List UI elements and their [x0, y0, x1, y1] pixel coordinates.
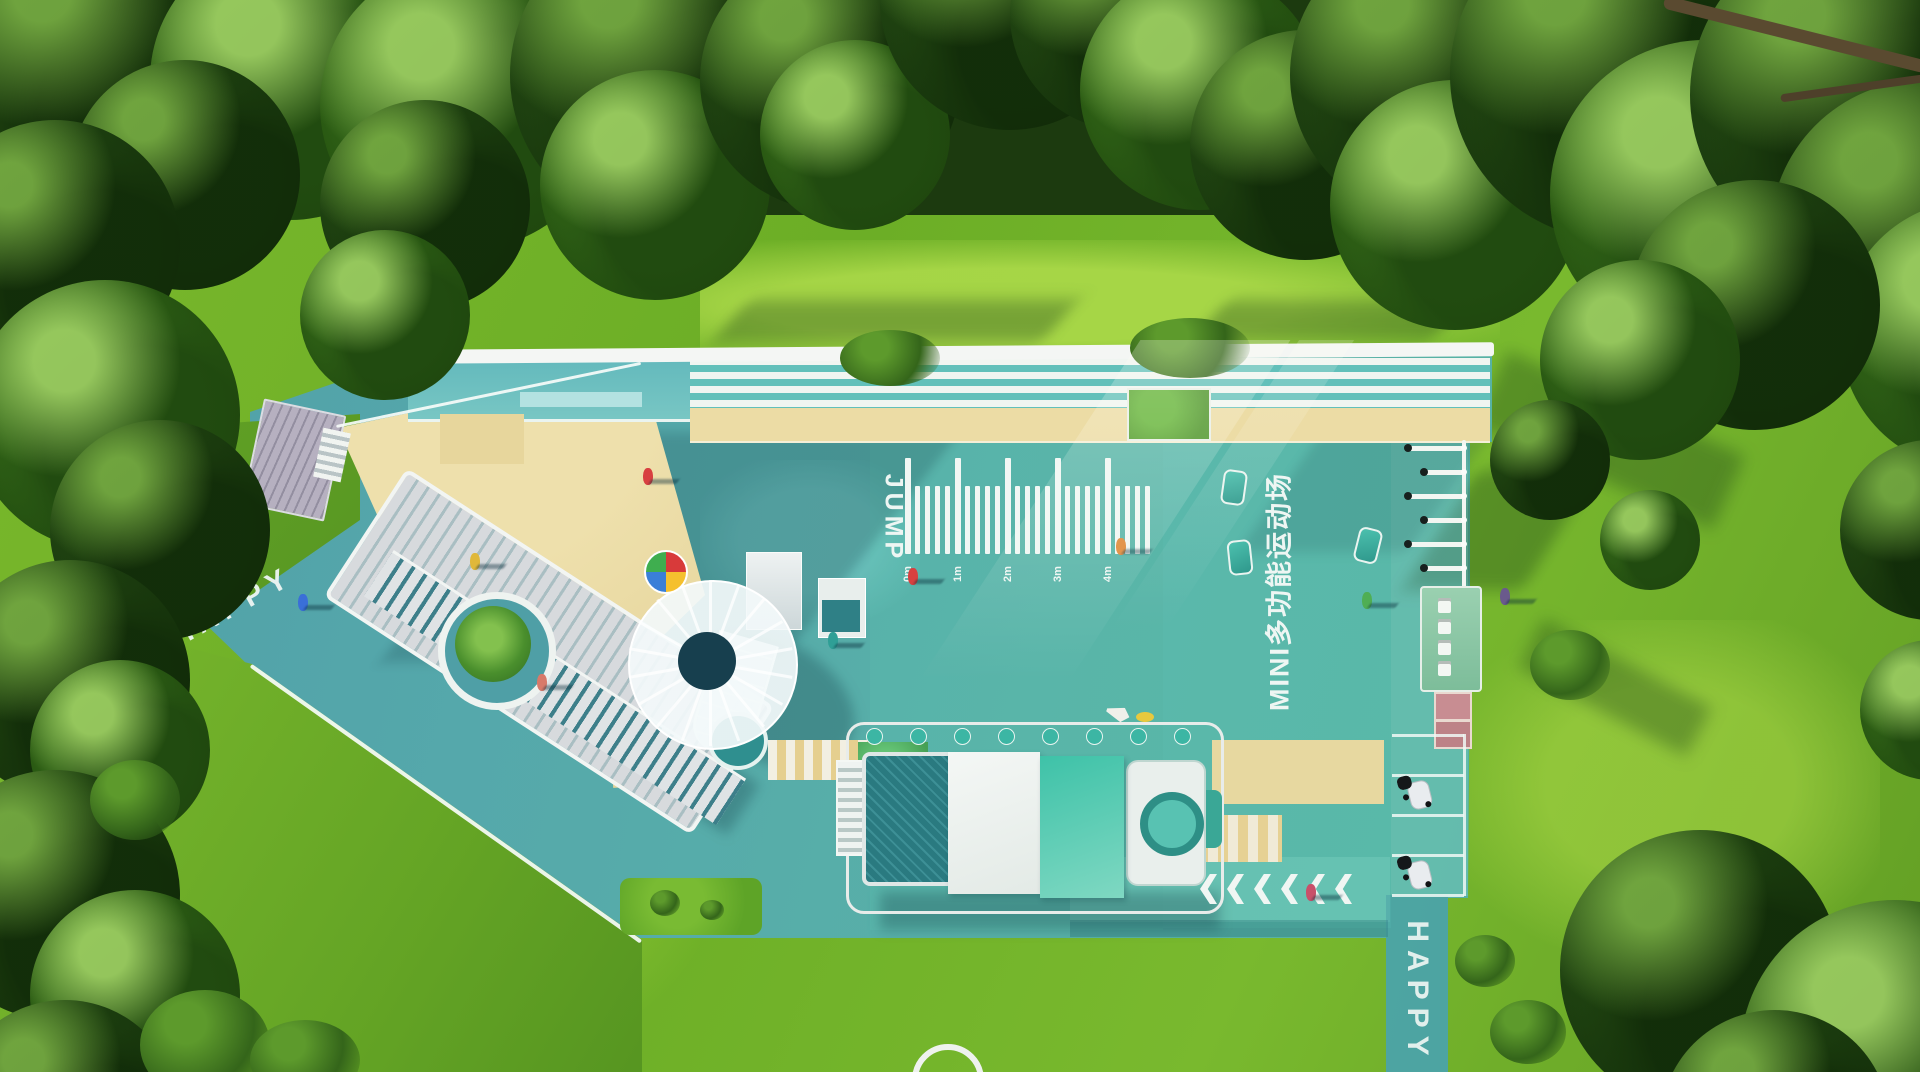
- fitness-bar: [1424, 566, 1464, 571]
- roof-planter-green: [1127, 388, 1211, 441]
- person-figure: [908, 568, 918, 585]
- person-figure: [298, 594, 308, 611]
- ruler-major-tick: [1105, 458, 1111, 554]
- ruler-tick-label: 4m: [1102, 559, 1114, 589]
- tree: [1490, 400, 1610, 520]
- person-figure: [1362, 592, 1372, 609]
- leaf-overhang: [840, 330, 940, 386]
- person-figure: [828, 632, 838, 649]
- chevron-arrow: [1254, 874, 1271, 904]
- person-figure: [537, 674, 547, 691]
- ruler-minor-tick: [1025, 486, 1030, 554]
- fitness-bar-post: [1461, 445, 1467, 451]
- fitness-bar-post: [1461, 517, 1467, 523]
- chevron-arrow: [1281, 874, 1298, 904]
- ruler-tick-label: 1m: [952, 559, 964, 589]
- bay-divider-line: [1392, 814, 1464, 817]
- train-roof-ball: [1086, 728, 1103, 745]
- train-roof-ball: [1042, 728, 1059, 745]
- train-roof-ball: [954, 728, 971, 745]
- ruler-minor-tick: [1035, 486, 1040, 554]
- ruler-minor-tick: [975, 486, 980, 554]
- train-roof-ball: [910, 728, 927, 745]
- bay-edge-line: [1463, 734, 1466, 896]
- pergola-slats: [690, 358, 1490, 410]
- spiral-slide: [628, 580, 794, 746]
- ruler-minor-tick: [1015, 486, 1020, 554]
- train-roof-ball: [1130, 728, 1147, 745]
- fitness-bar-post: [1461, 469, 1467, 475]
- play-box-net: [822, 600, 860, 632]
- fitness-bar: [1408, 446, 1464, 451]
- court-name-label: MINI多功能运动场: [1258, 460, 1297, 724]
- building-glass-strip: [520, 392, 642, 407]
- ruler-major-tick: [955, 458, 961, 554]
- ruler-minor-tick: [995, 486, 1000, 554]
- bush: [1455, 935, 1515, 987]
- train-roof-ball: [1174, 728, 1191, 745]
- fitness-bar-cap: [1404, 444, 1412, 452]
- fitness-bar-post: [1461, 541, 1467, 547]
- fitness-bar: [1424, 518, 1464, 523]
- stroller-wheel: [1425, 800, 1432, 807]
- fitness-bar-cap: [1420, 516, 1428, 524]
- bush: [1490, 1000, 1566, 1064]
- stroller-parking: [1392, 734, 1468, 896]
- bush: [700, 900, 724, 920]
- fitness-bar: [1408, 494, 1464, 499]
- train-bridge: [836, 760, 864, 856]
- building-sand-strip: [690, 408, 1490, 443]
- person-figure: [470, 553, 480, 570]
- person-figure: [643, 468, 653, 485]
- ride-on-car: [1226, 539, 1254, 576]
- tree: [300, 230, 470, 400]
- train-chimney: [1140, 792, 1204, 856]
- kiosk-sign-tile: [1438, 661, 1451, 676]
- duck-toy: [1136, 712, 1154, 722]
- bush: [650, 890, 680, 916]
- chevron-arrows: [1200, 874, 1370, 906]
- train-white-canopy: [948, 752, 1040, 894]
- ruler-minor-tick: [1075, 486, 1080, 554]
- train-roof-ball: [998, 728, 1015, 745]
- ruler-minor-tick: [925, 486, 930, 554]
- ruler-major-tick: [1005, 458, 1011, 554]
- person-figure: [1306, 884, 1316, 901]
- kiosk-sign-tile: [1438, 640, 1451, 655]
- building-canopy-teal: [408, 358, 708, 422]
- ruler-major-tick: [1055, 458, 1061, 554]
- happy-right-label: HAPPY: [1400, 907, 1434, 1072]
- ruler-minor-tick: [1065, 486, 1070, 554]
- ruler-minor-tick: [1145, 486, 1150, 554]
- pink-roof-box: [1434, 692, 1472, 721]
- bay-divider-line: [1392, 734, 1464, 737]
- ruler-minor-tick: [965, 486, 970, 554]
- chevron-arrow: [1227, 874, 1244, 904]
- ruler-minor-tick: [945, 486, 950, 554]
- ruler-minor-tick: [985, 486, 990, 554]
- train-roof-ball: [866, 728, 883, 745]
- kiosk-sign-tile: [1438, 598, 1451, 613]
- fitness-bar-cap: [1404, 540, 1412, 548]
- ruler-minor-tick: [1095, 486, 1100, 554]
- train-roof-balls: [866, 728, 1206, 744]
- grass-pad: [620, 878, 762, 935]
- aerial-playground-render: JUMP 0m1m2m3m4m MINI多功能运动场 HAPPY HAPPY: [0, 0, 1920, 1072]
- fitness-bar-cap: [1404, 492, 1412, 500]
- leaf-overhang: [1130, 318, 1250, 378]
- stroller-wheel: [1402, 794, 1409, 801]
- sand-square: [440, 414, 524, 464]
- ruler-minor-tick: [1135, 486, 1140, 554]
- fitness-bars-station: [1398, 440, 1472, 590]
- train-net-car: [862, 752, 956, 886]
- bush: [1530, 630, 1610, 700]
- spiral-hole: [678, 632, 736, 690]
- ruler-tick-label: 3m: [1052, 559, 1064, 589]
- ruler-minor-tick: [1045, 486, 1050, 554]
- stroller-wheel: [1425, 880, 1432, 887]
- bush: [90, 760, 180, 840]
- train-mint-canopy: [1040, 756, 1124, 898]
- fitness-bar-cap: [1420, 564, 1428, 572]
- umbrella: [644, 550, 688, 594]
- kiosk-sign-tile: [1438, 619, 1451, 634]
- ruler-minor-tick: [915, 486, 920, 554]
- ruler-tick-label: 2m: [1002, 559, 1014, 589]
- stroller-wheel: [1402, 874, 1409, 881]
- fitness-bar: [1408, 542, 1464, 547]
- tree: [1600, 490, 1700, 590]
- ring-greenery: [455, 606, 531, 682]
- ruler-minor-tick: [1085, 486, 1090, 554]
- bay-divider-line: [1392, 894, 1464, 897]
- chevron-arrow: [1200, 874, 1217, 904]
- ruler-major-tick: [905, 458, 911, 554]
- kiosk-building: [1420, 586, 1482, 692]
- fitness-bar-post: [1461, 565, 1467, 571]
- sand-area-right-of-train: [1212, 740, 1384, 804]
- fitness-bar-post: [1461, 493, 1467, 499]
- fitness-bar: [1424, 470, 1464, 475]
- person-figure: [1500, 588, 1510, 605]
- ruler-minor-tick: [935, 486, 940, 554]
- fitness-bar-cap: [1420, 468, 1428, 476]
- ride-on-car: [1220, 469, 1249, 507]
- person-figure: [1116, 538, 1126, 555]
